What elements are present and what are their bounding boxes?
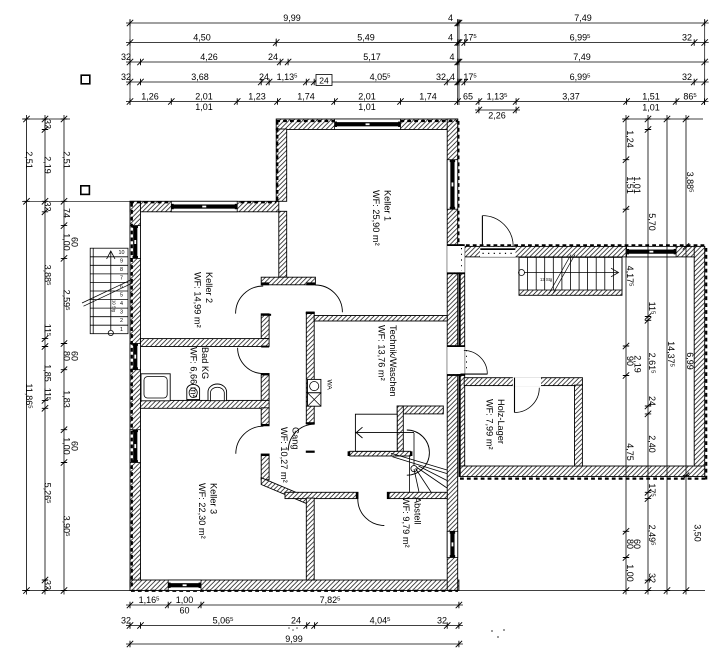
- svg-text:60: 60: [179, 605, 189, 615]
- svg-text:1,01: 1,01: [195, 102, 213, 112]
- svg-text:8: 8: [120, 267, 123, 273]
- svg-text:2,19: 2,19: [43, 156, 53, 174]
- svg-text:60: 60: [70, 441, 80, 451]
- svg-text:1,24: 1,24: [625, 130, 635, 148]
- svg-text:4: 4: [448, 13, 453, 23]
- svg-text:WF: 10,27 m²: WF: 10,27 m²: [279, 427, 289, 483]
- svg-text:4,75: 4,75: [625, 443, 635, 461]
- svg-text:WA: WA: [326, 380, 333, 391]
- svg-text:24: 24: [268, 52, 278, 62]
- svg-text:32: 32: [43, 119, 53, 129]
- svg-text:24: 24: [647, 396, 657, 406]
- svg-text:5,17: 5,17: [363, 52, 381, 62]
- svg-text:2,19: 2,19: [633, 355, 643, 373]
- svg-text:4,26: 4,26: [200, 52, 218, 62]
- svg-text:65: 65: [463, 91, 473, 101]
- svg-text:1,74: 1,74: [297, 91, 315, 101]
- svg-text:60: 60: [632, 539, 642, 549]
- svg-text:4: 4: [120, 301, 123, 307]
- svg-text:6,99: 6,99: [685, 352, 695, 370]
- svg-text:32: 32: [121, 72, 131, 82]
- svg-text:5,70: 5,70: [647, 213, 657, 231]
- svg-text:3,68: 3,68: [191, 72, 209, 82]
- svg-text:3,50: 3,50: [693, 524, 703, 542]
- svg-text:1,01: 1,01: [642, 102, 660, 112]
- svg-text:Bad KG: Bad KG: [200, 347, 210, 379]
- svg-text:3,37: 3,37: [562, 91, 580, 101]
- svg-text:Keller 1: Keller 1: [383, 190, 393, 221]
- svg-text:32: 32: [436, 72, 446, 82]
- svg-text:1,85: 1,85: [43, 364, 53, 382]
- svg-text:10 Stg: 10 Stg: [112, 300, 117, 313]
- svg-text:1,01: 1,01: [358, 102, 376, 112]
- svg-text:1,51: 1,51: [642, 91, 660, 101]
- svg-text:32: 32: [647, 573, 657, 583]
- svg-text:74: 74: [62, 208, 72, 218]
- svg-text:24: 24: [319, 76, 329, 86]
- svg-text:32: 32: [121, 52, 131, 62]
- svg-text:24: 24: [291, 615, 301, 625]
- svg-text:4: 4: [449, 52, 454, 62]
- svg-text:Keller 3: Keller 3: [209, 483, 219, 514]
- svg-text:9,99: 9,99: [283, 13, 301, 23]
- svg-text:32: 32: [682, 32, 692, 42]
- svg-text:1,00: 1,00: [176, 595, 194, 605]
- svg-text:1: 1: [120, 327, 123, 333]
- svg-text:1,26: 1,26: [141, 91, 159, 101]
- svg-text:3: 3: [120, 310, 123, 316]
- svg-text:WF: 6,66 m²: WF: 6,66 m²: [189, 347, 199, 398]
- svg-text:1,83: 1,83: [62, 390, 72, 408]
- svg-text:Technik/Waschen: Technik/Waschen: [388, 325, 398, 397]
- svg-text:WF: 25,90 m²: WF: 25,90 m²: [371, 190, 381, 246]
- svg-text:2,51: 2,51: [62, 151, 72, 169]
- svg-text:32: 32: [43, 580, 53, 590]
- svg-text:Gang: Gang: [291, 427, 301, 449]
- svg-text:7,49: 7,49: [574, 13, 592, 23]
- svg-text:6: 6: [120, 284, 123, 290]
- svg-text:5,49: 5,49: [357, 32, 375, 42]
- svg-text:32: 32: [121, 615, 131, 625]
- svg-text:2,51: 2,51: [24, 151, 34, 169]
- svg-text:2,40: 2,40: [647, 435, 657, 453]
- svg-text:4: 4: [450, 72, 455, 82]
- svg-text:1,74: 1,74: [419, 91, 437, 101]
- svg-text:5: 5: [120, 293, 123, 299]
- svg-text:60: 60: [70, 237, 80, 247]
- svg-text:7: 7: [120, 275, 123, 281]
- svg-text:9,99: 9,99: [285, 634, 303, 644]
- svg-text:2,01: 2,01: [358, 91, 376, 101]
- svg-text:24: 24: [259, 72, 269, 82]
- svg-text:32: 32: [43, 201, 53, 211]
- svg-text:WF: 14,99 m²: WF: 14,99 m²: [193, 272, 203, 328]
- svg-text:10: 10: [119, 250, 125, 256]
- svg-text:32: 32: [682, 72, 692, 82]
- svg-text:60: 60: [70, 351, 80, 361]
- svg-text:Holz-Lager: Holz-Lager: [496, 399, 506, 444]
- svg-text:1,23: 1,23: [248, 91, 266, 101]
- svg-text:4,50: 4,50: [193, 32, 211, 42]
- svg-text:1,01: 1,01: [632, 176, 642, 194]
- svg-text:WF: 13,76 m²: WF: 13,76 m²: [377, 325, 387, 381]
- svg-text:Abstell: Abstell: [413, 497, 423, 525]
- svg-text:WF: 9,79 m²: WF: 9,79 m²: [401, 497, 411, 548]
- svg-text:2,26: 2,26: [488, 110, 506, 120]
- svg-text:WF: 7,99 m²: WF: 7,99 m²: [485, 399, 495, 450]
- svg-text:Keller 2: Keller 2: [204, 272, 214, 303]
- svg-text:7,49: 7,49: [573, 52, 591, 62]
- svg-text:13 Stg: 13 Stg: [540, 277, 553, 282]
- svg-text:9: 9: [120, 258, 123, 264]
- svg-text:1,00: 1,00: [625, 564, 635, 582]
- svg-text:4: 4: [448, 32, 453, 42]
- svg-text:WF: 22,30 m²: WF: 22,30 m²: [197, 483, 207, 539]
- svg-text:32: 32: [437, 615, 447, 625]
- svg-text:2,01: 2,01: [195, 91, 213, 101]
- svg-text:2: 2: [120, 318, 123, 324]
